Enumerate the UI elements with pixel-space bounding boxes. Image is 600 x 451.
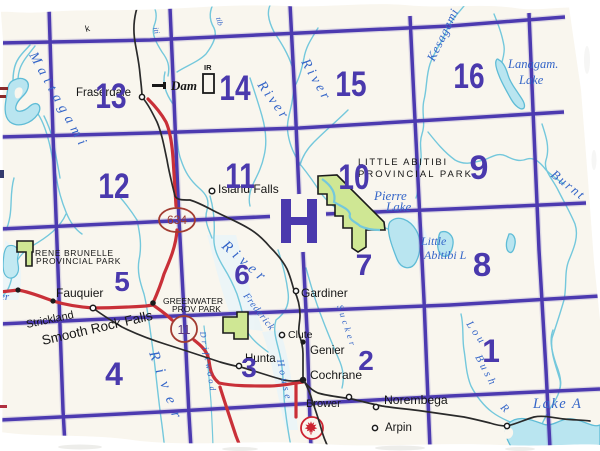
svg-text:PROVINCIAL PARK: PROVINCIAL PARK bbox=[36, 256, 121, 266]
svg-text:12: 12 bbox=[98, 166, 129, 206]
svg-text:15: 15 bbox=[335, 64, 366, 104]
svg-text:634: 634 bbox=[167, 213, 187, 227]
svg-text:1: 1 bbox=[482, 333, 500, 369]
svg-text:Norembega: Norembega bbox=[384, 393, 448, 407]
svg-text:9: 9 bbox=[470, 149, 489, 187]
svg-text:10: 10 bbox=[338, 157, 369, 197]
svg-text:Genier: Genier bbox=[310, 345, 345, 357]
svg-text:3: 3 bbox=[241, 352, 257, 383]
svg-text:Gardiner: Gardiner bbox=[301, 286, 348, 300]
svg-text:Little: Little bbox=[420, 234, 447, 248]
svg-text:6: 6 bbox=[234, 259, 250, 290]
svg-text:Cochrane: Cochrane bbox=[310, 368, 362, 382]
svg-text:Arpin: Arpin bbox=[385, 422, 412, 434]
svg-text:PROV PARK: PROV PARK bbox=[172, 304, 221, 314]
svg-text:11: 11 bbox=[178, 323, 191, 337]
svg-text:8: 8 bbox=[473, 246, 491, 283]
svg-text:Lake: Lake bbox=[518, 73, 544, 87]
svg-text:2: 2 bbox=[358, 345, 374, 376]
svg-text:LITTLE ABITIBI: LITTLE ABITIBI bbox=[358, 157, 448, 168]
svg-text:4: 4 bbox=[105, 356, 123, 392]
svg-text:7: 7 bbox=[356, 249, 373, 282]
svg-text:PROVINCIAL PARK: PROVINCIAL PARK bbox=[358, 169, 473, 180]
svg-text:16: 16 bbox=[453, 56, 484, 96]
svg-text:Abitibi L: Abitibi L bbox=[423, 248, 467, 262]
svg-text:Lake A: Lake A bbox=[532, 396, 582, 412]
svg-text:Lanagam.: Lanagam. bbox=[507, 57, 558, 71]
svg-text:Fauquier: Fauquier bbox=[56, 286, 103, 300]
svg-text:14: 14 bbox=[219, 68, 250, 108]
svg-text:5: 5 bbox=[114, 266, 130, 297]
svg-text:Lake: Lake bbox=[385, 199, 412, 214]
svg-text:Clute: Clute bbox=[288, 329, 313, 341]
svg-text:Dam: Dam bbox=[170, 78, 197, 93]
svg-text:11: 11 bbox=[225, 156, 255, 196]
svg-text:IR: IR bbox=[204, 63, 212, 72]
svg-text:13: 13 bbox=[95, 76, 126, 116]
